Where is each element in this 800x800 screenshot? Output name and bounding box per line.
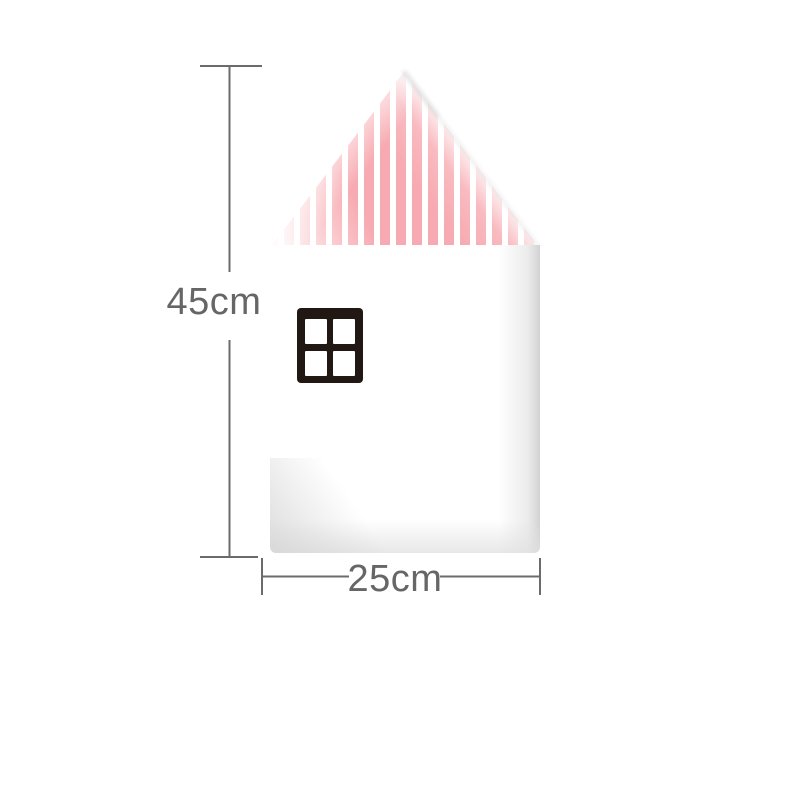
window-pane xyxy=(305,319,327,344)
diagram-canvas: 45cm 25cm xyxy=(0,0,800,800)
roof xyxy=(270,70,542,248)
product-dimension-diagram: 45cm 25cm xyxy=(0,0,800,800)
height-dimension: 45cm xyxy=(167,66,262,557)
width-dimension: 25cm xyxy=(262,558,540,600)
window-pane xyxy=(333,319,355,344)
height-dimension-label: 45cm xyxy=(167,281,262,323)
roof-gloss-overlay xyxy=(270,70,542,248)
window-pane xyxy=(333,351,355,376)
window-pane xyxy=(305,351,327,376)
window xyxy=(297,308,363,383)
house-illustration xyxy=(270,70,542,553)
width-dimension-label: 25cm xyxy=(348,558,443,600)
house-body xyxy=(270,245,540,553)
body-corner-shadow xyxy=(270,458,415,553)
body-right-shadow xyxy=(498,245,540,553)
